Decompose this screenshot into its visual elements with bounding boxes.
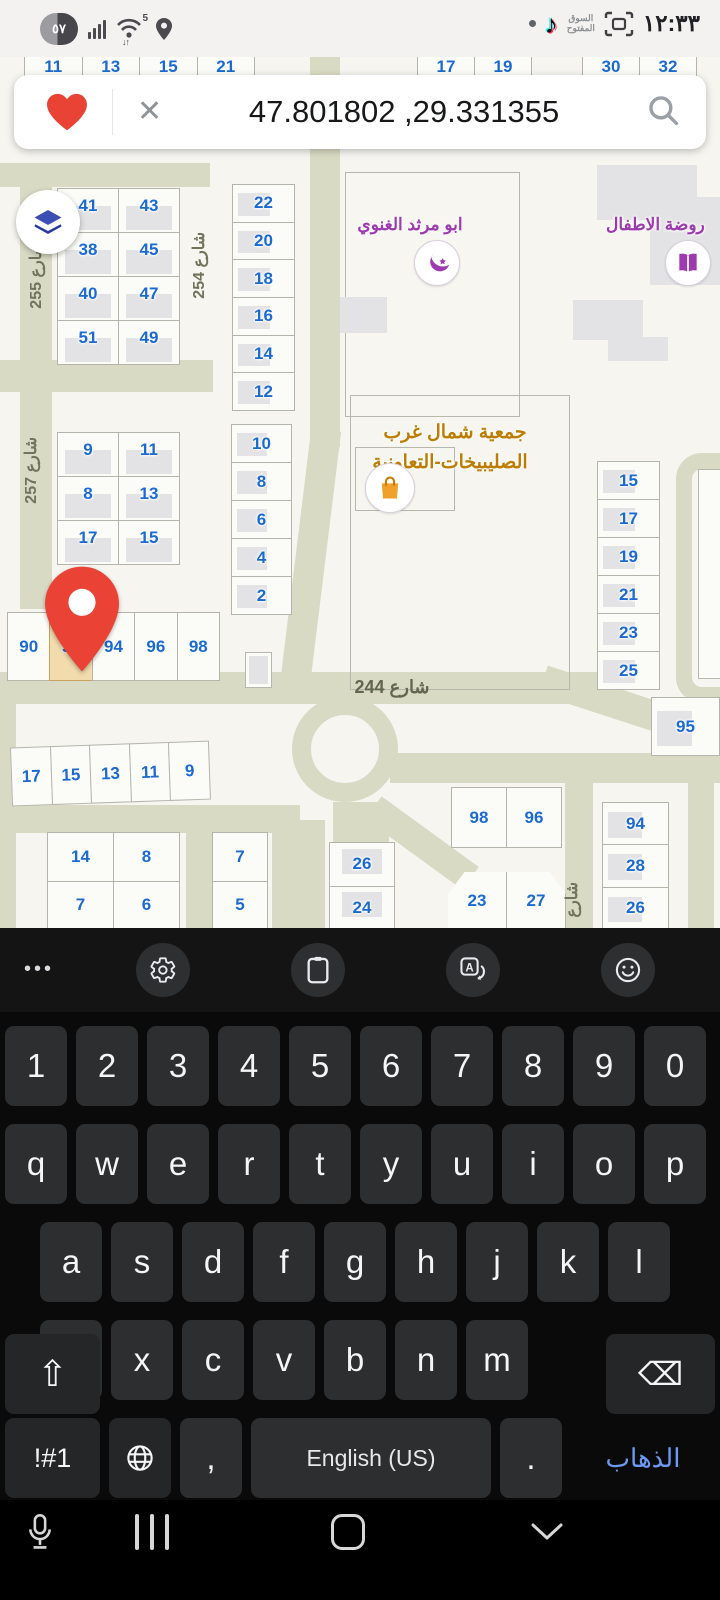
map-plot: 45 xyxy=(118,232,180,277)
microphone-icon xyxy=(27,1514,53,1550)
home-icon xyxy=(331,1514,365,1550)
key[interactable]: a xyxy=(40,1222,102,1302)
map-canvas[interactable]: 11131521 1719 3032 4143384540475149 2220… xyxy=(0,57,720,930)
mosque-icon[interactable] xyxy=(414,240,460,286)
poi-label-kindergarten: روضة الاطفال xyxy=(606,215,720,235)
map-plot: 11 xyxy=(118,432,180,477)
road xyxy=(272,820,325,930)
map-plot: 6 xyxy=(113,881,180,931)
key[interactable]: g xyxy=(324,1222,386,1302)
plot-column-94: 942826 xyxy=(603,803,669,930)
building xyxy=(249,656,268,684)
map-plot: 26 xyxy=(329,842,395,887)
map-plot: 4 xyxy=(231,538,292,577)
key[interactable]: 1 xyxy=(5,1026,67,1106)
map-plot: 9 xyxy=(168,741,211,801)
key[interactable]: c xyxy=(182,1320,244,1400)
poi-label-coop-line2: الصليبيخات-التعاونية xyxy=(325,451,575,474)
map-plot: 18 xyxy=(232,259,295,298)
map-plot: 96 xyxy=(134,612,177,681)
street-label-254: شارع 254 xyxy=(189,232,209,328)
clipboard-button[interactable] xyxy=(291,943,345,997)
roundabout xyxy=(292,696,398,802)
translate-icon: A xyxy=(458,955,488,985)
map-plot: 14 xyxy=(232,335,295,374)
map-plot: 11 xyxy=(129,742,172,802)
space-key[interactable]: English (US) xyxy=(251,1418,491,1498)
keyboard-toolbar: ••• A xyxy=(0,928,720,1012)
clear-search-icon[interactable]: ✕ xyxy=(137,97,162,127)
street-label-244: شارع 244 xyxy=(312,677,472,698)
svg-text:A: A xyxy=(465,963,474,975)
go-key-label: الذهاب xyxy=(606,1443,681,1474)
keyboard: 1234567890 qwertyuiop asdfghjkl zxcvbnm … xyxy=(0,1012,720,1500)
map-plot: 20 xyxy=(232,222,295,261)
key[interactable]: f xyxy=(253,1222,315,1302)
key[interactable]: b xyxy=(324,1320,386,1400)
plot-column-26: 2624 xyxy=(330,843,395,930)
map-pin[interactable] xyxy=(45,566,119,677)
map-plot: 17 xyxy=(597,499,660,538)
map-plot: 9 xyxy=(57,432,119,477)
map-plot: 40 xyxy=(57,276,119,321)
street-label-255: شارع 255 xyxy=(26,242,46,338)
more-options-icon[interactable]: ••• xyxy=(24,958,54,981)
poi-label-mosque: ابو مرثد الغنوي xyxy=(310,215,510,235)
map-plot: 15 xyxy=(597,461,660,500)
map-plot: 5 xyxy=(212,881,268,931)
location-icon xyxy=(156,18,172,40)
map-plot: 22 xyxy=(232,184,295,223)
map-plot: 96 xyxy=(506,787,562,848)
search-icon[interactable] xyxy=(646,93,680,132)
map-plot: 8 xyxy=(113,832,180,882)
plot-column-22: 222018161412 xyxy=(233,185,295,411)
space-key-label: English (US) xyxy=(306,1445,435,1472)
building xyxy=(340,297,387,333)
mosque-parcel xyxy=(345,172,520,417)
road xyxy=(688,779,714,930)
key[interactable]: 3 xyxy=(147,1026,209,1106)
map-plot: 51 xyxy=(57,320,119,365)
key[interactable]: s xyxy=(111,1222,173,1302)
key[interactable]: h xyxy=(395,1222,457,1302)
signal-icon xyxy=(88,19,106,39)
map-plot: 24 xyxy=(329,886,395,931)
road xyxy=(390,753,720,783)
road xyxy=(186,820,214,930)
plot-row-17: 171513119 xyxy=(11,742,211,807)
divider xyxy=(112,89,113,135)
plot-block-9: 9118131715 xyxy=(58,433,180,565)
street-label-257: شارع 257 xyxy=(21,437,41,533)
edge-parcel xyxy=(698,469,720,679)
wifi-icon: 5 ↓↑ xyxy=(116,17,146,41)
map-plot: 26 xyxy=(602,887,669,930)
road xyxy=(0,805,300,833)
battery-icon: ٥٧ xyxy=(40,13,78,45)
key[interactable]: n xyxy=(395,1320,457,1400)
key[interactable]: k xyxy=(537,1222,599,1302)
map-plot: 7 xyxy=(47,881,114,931)
key[interactable]: j xyxy=(466,1222,528,1302)
key[interactable]: e xyxy=(147,1124,209,1204)
poi-label-coop-line1: جمعية شمال غرب xyxy=(330,421,580,444)
key[interactable]: l xyxy=(608,1222,670,1302)
key-row-2: asdfghjkl xyxy=(0,1222,720,1302)
key[interactable]: q xyxy=(5,1124,67,1204)
plot-column-7: 75 xyxy=(213,833,268,930)
go-key[interactable]: الذهاب xyxy=(571,1418,715,1498)
keyboard-settings-button[interactable] xyxy=(136,943,190,997)
map-plot: 2 xyxy=(231,576,292,615)
map-plot: 6 xyxy=(231,500,292,539)
key[interactable]: 8 xyxy=(502,1026,564,1106)
key[interactable]: 9 xyxy=(573,1026,635,1106)
symbols-key[interactable]: !#1 xyxy=(5,1418,100,1498)
plot-block-14: 14876 xyxy=(48,833,180,930)
map-plot: 28 xyxy=(602,844,669,887)
search-input[interactable] xyxy=(162,93,646,131)
map-plot: 23 xyxy=(597,613,660,652)
translate-button[interactable]: A xyxy=(446,943,500,997)
key[interactable]: o xyxy=(573,1124,635,1204)
map-plot: 7 xyxy=(212,832,268,882)
map-plot: 21 xyxy=(597,575,660,614)
key[interactable]: u xyxy=(431,1124,493,1204)
map-plot: 98 xyxy=(177,612,220,681)
voice-input-button[interactable] xyxy=(18,1510,62,1554)
back-hide-keyboard-button[interactable] xyxy=(522,1510,572,1554)
plot-row-23: 2327 xyxy=(448,872,566,930)
key[interactable]: x xyxy=(111,1320,173,1400)
key[interactable]: 5 xyxy=(289,1026,351,1106)
plot-column-10: 108642 xyxy=(232,425,292,615)
tiktok-icon: ♪ xyxy=(545,11,558,37)
period-key[interactable]: . xyxy=(500,1418,562,1498)
map-plot: 13 xyxy=(118,476,180,521)
status-bar: ٥٧ 5 ↓↑ ♪ السوق ال xyxy=(0,0,720,57)
building xyxy=(608,337,668,361)
key[interactable]: m xyxy=(466,1320,528,1400)
key[interactable]: w xyxy=(76,1124,138,1204)
map-plot: 43 xyxy=(118,188,180,233)
navigation-bar xyxy=(0,1500,720,1600)
key[interactable]: p xyxy=(644,1124,706,1204)
emoji-button[interactable] xyxy=(601,943,655,997)
key[interactable]: 2 xyxy=(76,1026,138,1106)
key-row-bottom: !#1 , English (US) . الذهاب xyxy=(0,1418,720,1498)
smiley-icon xyxy=(614,956,642,984)
map-plot: 25 xyxy=(597,651,660,690)
map-plot: 94 xyxy=(602,802,669,845)
map-plot: 17 xyxy=(10,746,53,806)
map-plot: 13 xyxy=(89,743,132,803)
language-globe-key[interactable] xyxy=(109,1418,171,1498)
building xyxy=(573,300,643,340)
map-plot: 17 xyxy=(57,520,119,565)
gear-icon xyxy=(149,956,177,984)
map-plot: 98 xyxy=(451,787,507,848)
key[interactable]: v xyxy=(253,1320,315,1400)
map-plot: 10 xyxy=(231,424,292,463)
phone-screen: ٥٧ 5 ↓↑ ♪ السوق ال xyxy=(0,0,720,1600)
notification-dot-icon xyxy=(529,20,536,27)
map-plot: 8 xyxy=(57,476,119,521)
plot-column-15: 151719212325 xyxy=(598,462,660,690)
road xyxy=(0,700,16,930)
key[interactable]: 7 xyxy=(431,1026,493,1106)
backspace-key[interactable]: ⌫ xyxy=(606,1334,715,1414)
status-left-cluster: ٥٧ 5 ↓↑ xyxy=(40,13,172,45)
map-plot: 15 xyxy=(118,520,180,565)
home-button[interactable] xyxy=(326,1510,370,1554)
search-bar: ✕ xyxy=(14,75,706,149)
map-plot: 49 xyxy=(118,320,180,365)
plot-95: 95 xyxy=(652,698,720,756)
wifi-badge: 5 xyxy=(142,13,148,24)
screenshot-icon xyxy=(604,11,634,37)
map-plot: 15 xyxy=(50,745,93,805)
favorite-heart-icon[interactable] xyxy=(44,92,90,132)
key[interactable]: 4 xyxy=(218,1026,280,1106)
map-plot: 47 xyxy=(118,276,180,321)
recents-button[interactable] xyxy=(128,1510,176,1554)
map-layers-button[interactable] xyxy=(16,190,80,254)
key-row-1: qwertyuiop xyxy=(0,1124,720,1204)
clipboard-icon xyxy=(305,956,331,984)
key[interactable]: d xyxy=(182,1222,244,1302)
key[interactable]: t xyxy=(289,1124,351,1204)
globe-icon xyxy=(125,1443,155,1473)
map-plot: 27 xyxy=(506,871,566,930)
map-plot: 8 xyxy=(231,462,292,501)
map-plot: 16 xyxy=(232,297,295,336)
chevron-down-icon xyxy=(530,1522,564,1542)
key-row-numbers: 1234567890 xyxy=(0,1026,720,1106)
key[interactable]: r xyxy=(218,1124,280,1204)
comma-key[interactable]: , xyxy=(180,1418,242,1498)
clock: ١٢:٣٣ xyxy=(643,10,700,37)
kindergarten-book-icon[interactable] xyxy=(665,240,711,286)
key[interactable]: 0 xyxy=(644,1026,706,1106)
wifi-arrows: ↓↑ xyxy=(122,37,129,47)
map-plot: 14 xyxy=(47,832,114,882)
opensooq-icon: السوق المفتوح xyxy=(567,14,595,33)
street-label-partial: شارع xyxy=(562,882,582,930)
shift-key[interactable]: ⇧ xyxy=(5,1334,100,1414)
coop-shopping-bag-icon[interactable] xyxy=(365,463,415,513)
key[interactable]: i xyxy=(502,1124,564,1204)
map-plot: 90 xyxy=(7,612,50,681)
key[interactable]: y xyxy=(360,1124,422,1204)
key[interactable]: 6 xyxy=(360,1026,422,1106)
map-plot: 19 xyxy=(597,537,660,576)
map-plot: 12 xyxy=(232,372,295,411)
status-right-cluster: ♪ السوق المفتوح ١٢:٣٣ xyxy=(529,10,700,37)
plot-row-98: 9896 xyxy=(452,788,562,848)
